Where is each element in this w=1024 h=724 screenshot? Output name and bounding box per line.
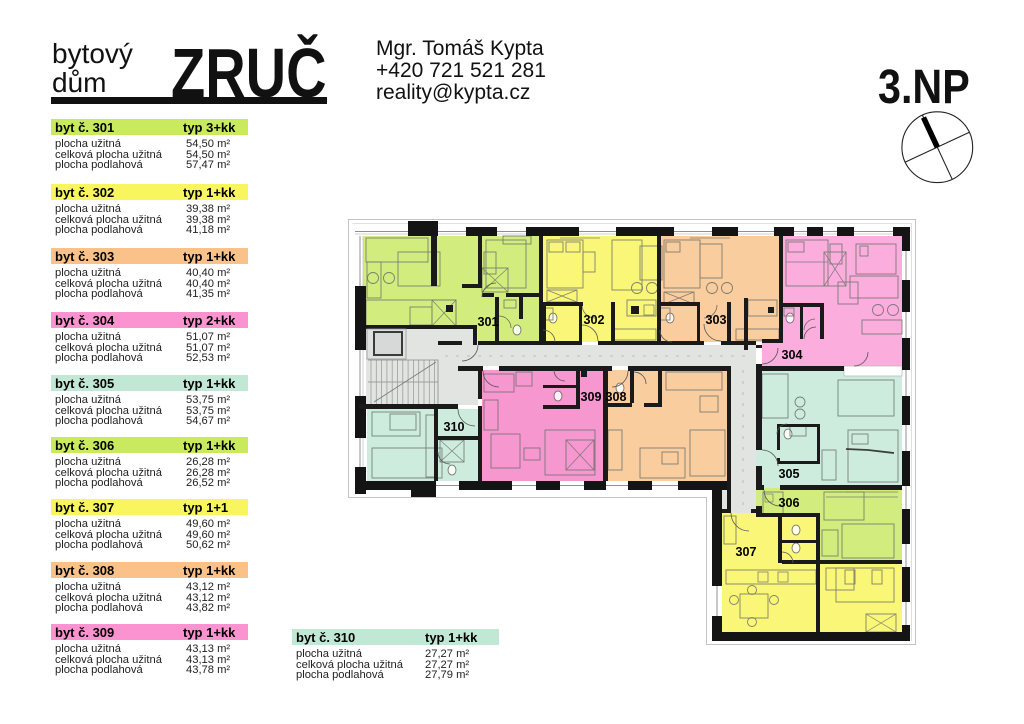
- svg-text:308: 308: [605, 390, 626, 404]
- svg-text:302: 302: [583, 313, 604, 327]
- svg-text:309: 309: [580, 390, 601, 404]
- svg-text:310: 310: [443, 420, 464, 434]
- svg-text:301: 301: [477, 315, 498, 329]
- svg-text:307: 307: [735, 545, 756, 559]
- svg-text:304: 304: [781, 348, 802, 362]
- svg-text:305: 305: [778, 467, 799, 481]
- svg-text:303: 303: [705, 313, 726, 327]
- svg-text:306: 306: [778, 496, 799, 510]
